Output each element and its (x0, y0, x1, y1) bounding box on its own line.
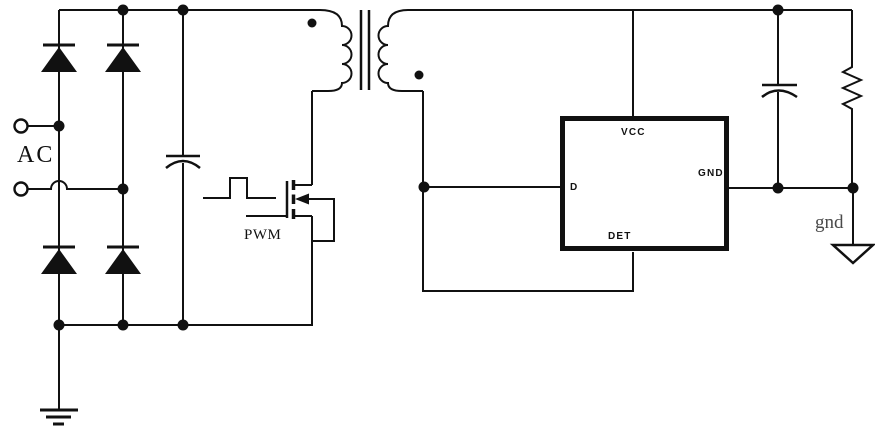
output-gnd-label: gnd (815, 213, 844, 232)
ic-pin-label-vcc: VCC (621, 127, 646, 138)
diode-bottom-right (105, 247, 141, 274)
output-capacitor-icon (762, 10, 797, 188)
diode-top-left (41, 45, 77, 72)
ac-label: AC (17, 143, 54, 167)
transformer (59, 10, 852, 91)
bridge-rectifier (41, 10, 141, 325)
pwm-label: PWM (244, 228, 281, 243)
mosfet (246, 91, 334, 325)
bottom-rail (40, 216, 312, 424)
load-resistor-icon (843, 10, 861, 188)
ic-pin-label-det: DET (608, 231, 632, 242)
circuit-svg (0, 0, 875, 428)
secondary-phase-dot-icon (415, 71, 424, 80)
earth-ground-icon (40, 410, 78, 424)
body-arrow-icon (295, 194, 309, 205)
ac-terminal-top-icon (15, 120, 28, 133)
pwm-pulse-icon (203, 178, 276, 198)
schematic-canvas: VCC D GND DET AC PWM gnd (0, 0, 875, 428)
bulk-capacitor-icon (166, 10, 200, 325)
ac-terminal-bottom-icon (15, 183, 28, 196)
primary-phase-dot-icon (308, 19, 317, 28)
wire-hop (28, 181, 123, 189)
ground-triangle-icon (833, 245, 873, 263)
diode-top-right (105, 45, 141, 72)
diode-bottom-left (41, 247, 77, 274)
junction-dots (54, 5, 859, 331)
ic-pin-label-d: D (570, 182, 578, 193)
secondary-winding (379, 10, 853, 91)
ic-pin-label-gnd: GND (698, 168, 724, 179)
